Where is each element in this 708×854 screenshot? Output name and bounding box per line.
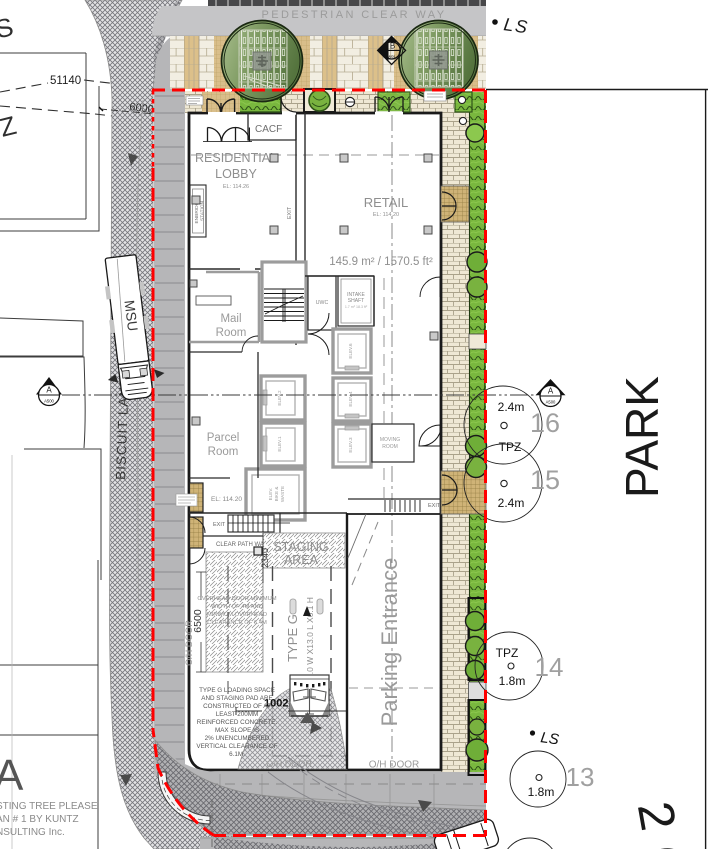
svg-text:145.9 m² / 1570.5 ft²: 145.9 m² / 1570.5 ft² [329, 256, 433, 268]
svg-text:UWC: UWC [316, 300, 329, 306]
svg-text:TPZ: TPZ [496, 646, 519, 660]
svg-text:TYPE G LOADING SPACE: TYPE G LOADING SPACE [199, 687, 275, 694]
svg-text:Parking Entrance: Parking Entrance [377, 558, 402, 727]
svg-text:MOVING: MOVING [380, 437, 400, 443]
svg-text:CACF: CACF [255, 124, 282, 135]
svg-text:A: A [548, 387, 554, 396]
svg-text:SHAFT: SHAFT [348, 298, 364, 304]
svg-text:WIDTH OF 4M AND: WIDTH OF 4M AND [211, 604, 263, 610]
svg-text:Room: Room [216, 327, 247, 339]
svg-text:ELEV.4: ELEV.4 [348, 391, 353, 407]
svg-text:ELEV.2: ELEV.2 [277, 390, 282, 406]
svg-text:STING TREE PLEASE: STING TREE PLEASE [0, 801, 98, 812]
svg-text:EXIT: EXIT [428, 503, 441, 509]
svg-text:WASTE: WASTE [280, 486, 285, 502]
svg-text:REINFORCED CONCRETE.: REINFORCED CONCRETE. [197, 719, 278, 726]
svg-text:O/H DOOR: O/H DOOR [369, 760, 420, 771]
svg-text:15: 15 [530, 465, 560, 495]
svg-text:LS: LS [539, 729, 560, 748]
svg-text:EL: 114.20: EL: 114.20 [211, 496, 242, 503]
svg-text:W01: W01 [387, 54, 396, 59]
svg-text:51140: 51140 [50, 75, 81, 87]
svg-text:B: B [390, 42, 395, 51]
svg-text:O/H DOOR: O/H DOOR [184, 620, 194, 666]
svg-text:ELEV.6: ELEV.6 [348, 343, 353, 359]
svg-text:A: A [0, 751, 24, 800]
svg-text:TYPE G: TYPE G [285, 614, 300, 662]
svg-text:RETAIL: RETAIL [364, 195, 409, 210]
svg-text:AREA: AREA [284, 553, 319, 567]
svg-text:A500: A500 [44, 399, 54, 404]
svg-text:Mail: Mail [220, 313, 241, 325]
svg-text:PEDESTRIAN CLEAR WAY: PEDESTRIAN CLEAR WAY [262, 9, 447, 21]
svg-text:1.8m: 1.8m [499, 674, 526, 688]
svg-text:6.1M.: 6.1M. [229, 751, 245, 758]
svg-text:ELEV.3: ELEV.3 [348, 437, 353, 453]
svg-text:BIKE &: BIKE & [274, 487, 279, 502]
svg-text:ELEV.1: ELEV.1 [277, 436, 282, 452]
svg-text:EXIT: EXIT [213, 522, 226, 528]
svg-text:14: 14 [535, 652, 564, 682]
svg-text:1.8m: 1.8m [528, 785, 555, 799]
svg-text:CLEARANCE OF 6.4M: CLEARANCE OF 6.4M [207, 620, 267, 626]
svg-text:STAGING: STAGING [273, 540, 328, 554]
svg-text:PARK: PARK [616, 376, 668, 498]
svg-text:16: 16 [530, 408, 560, 438]
svg-text:ELEV.: ELEV. [268, 488, 273, 501]
svg-text:2% UNENCUMBERED: 2% UNENCUMBERED [205, 735, 270, 742]
svg-text:EL: 114.26: EL: 114.26 [223, 184, 249, 190]
svg-text:OVERHEAD DOOR MINIMUM: OVERHEAD DOOR MINIMUM [197, 596, 276, 602]
svg-text:LOBBY: LOBBY [215, 167, 257, 181]
svg-text:2.4m: 2.4m [498, 496, 525, 510]
svg-text:LEAST 200MM: LEAST 200MM [216, 711, 259, 718]
svg-text:AND STAGING PAD ARE: AND STAGING PAD ARE [201, 695, 273, 702]
svg-text:A: A [46, 386, 52, 395]
svg-text:A500: A500 [546, 400, 556, 405]
svg-text:1.7 m² 18.3 ft²: 1.7 m² 18.3 ft² [345, 305, 368, 309]
svg-text:NSULTING Inc.: NSULTING Inc. [0, 827, 65, 838]
svg-text:2.4m: 2.4m [498, 400, 525, 414]
svg-text:RESIDENTIAL: RESIDENTIAL [195, 151, 277, 165]
svg-text:O/H DOOR: O/H DOOR [266, 759, 312, 769]
svg-text:13: 13 [566, 762, 595, 792]
svg-text:EXIT: EXIT [287, 206, 293, 219]
svg-text:MAX SLOPE IS: MAX SLOPE IS [215, 727, 259, 734]
svg-text:EL: 114.20: EL: 114.20 [373, 212, 399, 218]
svg-text:CONSTRUCTED OF AT: CONSTRUCTED OF AT [203, 703, 271, 710]
svg-text:VERTICAL CLEARANCE OF: VERTICAL CLEARANCE OF [196, 743, 277, 750]
svg-text:AN # 1 BY KUNTZ: AN # 1 BY KUNTZ [0, 814, 79, 825]
svg-text:Room: Room [208, 446, 239, 458]
svg-text:ROOM: ROOM [382, 444, 398, 450]
svg-text:Parcel: Parcel [207, 432, 240, 444]
svg-text:LS: LS [502, 14, 530, 37]
svg-text:MINIMUM OVERHEAD: MINIMUM OVERHEAD [207, 612, 267, 618]
